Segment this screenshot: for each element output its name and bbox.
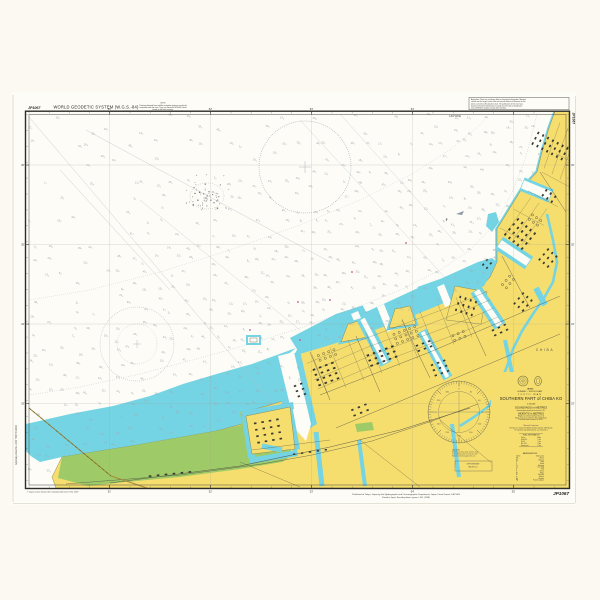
svg-text:JP1067: JP1067 <box>553 491 569 496</box>
svg-text:Mercator Projection: Mercator Projection <box>524 424 539 427</box>
svg-text:© Japan Coast Guard chart repr: © Japan Coast Guard chart reproduction l… <box>27 491 79 494</box>
svg-text:Flashing: Flashing <box>538 465 544 467</box>
svg-text:SOUNDINGS in METRES: SOUNDINGS in METRES <box>515 406 547 410</box>
svg-text:Oc: Oc <box>516 467 518 469</box>
svg-text:Adjoining Chart No.1062 TOKYO: Adjoining Chart No.1062 TOKYO WAN <box>15 425 18 465</box>
svg-text:Place: Place <box>521 437 525 439</box>
svg-text:Chiba: Chiba <box>537 437 541 439</box>
svg-text:TIDAL INFORMATION: TIDAL INFORMATION <box>523 433 541 436</box>
svg-text:Consult NTM for updates issued: Consult NTM for updates issued after tha… <box>471 107 507 110</box>
svg-text:HEIGHTS in METRES: HEIGHTS in METRES <box>518 411 544 415</box>
svg-text:No: No <box>516 478 518 480</box>
svg-text:HONSHU — SOUTH COAST: HONSHU — SOUTH COAST <box>518 390 544 393</box>
svg-text:54': 54' <box>411 107 415 111</box>
svg-text:36': 36' <box>571 163 575 167</box>
svg-text:52': 52' <box>209 107 213 111</box>
svg-text:Red: Red <box>541 469 544 471</box>
svg-text:51': 51' <box>108 490 112 494</box>
svg-text:Sea mile: Sea mile <box>538 474 544 476</box>
svg-text:WORLD GEODETIC SYSTEM (W.G.S.-: WORLD GEODETIC SYSTEM (W.G.S.-84) <box>53 104 139 109</box>
svg-text:34': 34' <box>571 322 575 326</box>
svg-text:based on the latest surveys.: based on the latest surveys. <box>152 108 174 111</box>
svg-text:33': 33' <box>21 402 25 406</box>
svg-text:ABBREVIATIONS: ABBREVIATIONS <box>523 452 538 455</box>
svg-text:Green: Green <box>540 470 545 472</box>
svg-text:35': 35' <box>571 243 575 247</box>
svg-text:52': 52' <box>209 490 213 494</box>
svg-text:35': 35' <box>21 243 25 247</box>
svg-text:M.S.L.: M.S.L. <box>521 441 526 443</box>
svg-text:Number: Number <box>538 478 544 480</box>
svg-text:34': 34' <box>21 322 25 326</box>
svg-text:55': 55' <box>512 490 516 494</box>
svg-text:M.H.W.L.: M.H.W.L. <box>521 439 528 441</box>
svg-text:Bn: Bn <box>516 459 518 461</box>
svg-text:Published at Tokyo, Japan by t: Published at Tokyo, Japan by the Hydrogr… <box>352 493 460 496</box>
svg-text:53': 53' <box>310 107 314 111</box>
svg-text:Fixed: Fixed <box>540 463 544 465</box>
svg-text:M.L.W.L.: M.L.W.L. <box>521 443 528 445</box>
svg-text:JP1067: JP1067 <box>28 106 41 110</box>
svg-text:36': 36' <box>21 163 25 167</box>
svg-text:CHIBA: CHIBA <box>536 348 554 352</box>
svg-text:SOUTHERN PART of CHIBA KO: SOUTHERN PART of CHIBA KO <box>500 396 563 401</box>
svg-text:Beacon: Beacon <box>539 459 545 461</box>
svg-text:53': 53' <box>310 490 314 494</box>
svg-text:F: F <box>516 463 517 465</box>
svg-text:140°00'E: 140°00'E <box>449 114 461 118</box>
svg-text:33': 33' <box>571 402 575 406</box>
svg-text:Printed in Japan. Sounding dat: Printed in Japan. Sounding datum: approx… <box>382 496 430 499</box>
svg-text:Wk: Wk <box>516 457 519 459</box>
svg-text:✝: ✝ <box>445 217 448 222</box>
svg-text:Wreck: Wreck <box>540 457 545 459</box>
svg-text:CAUTION: CAUTION <box>452 448 460 451</box>
svg-text:JP1067: JP1067 <box>572 113 576 125</box>
